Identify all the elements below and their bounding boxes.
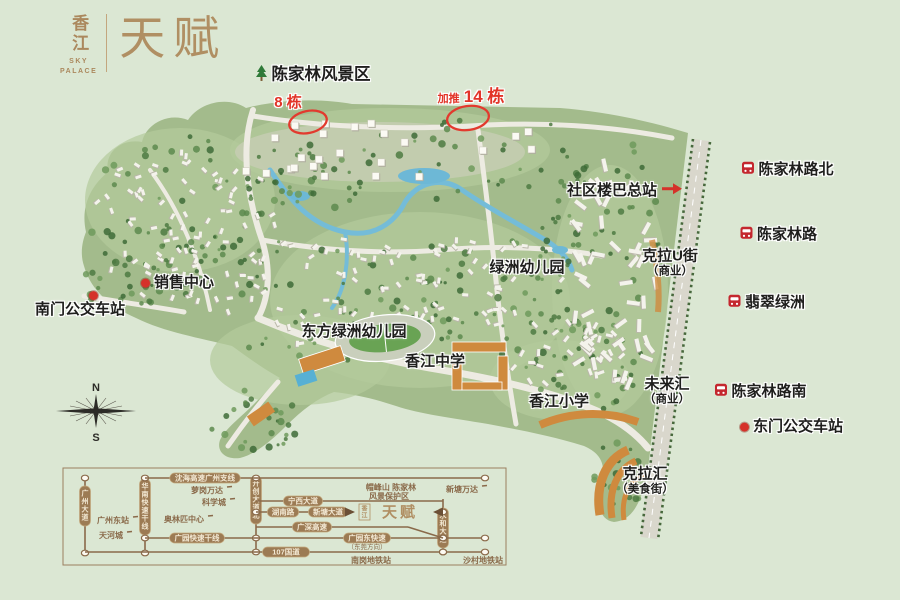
svg-text:南: 南 — [142, 490, 149, 499]
svg-text:沈海高速广州支线: 沈海高速广州支线 — [175, 473, 235, 483]
transit-place-label: 沙村地铁站 — [463, 555, 503, 565]
svg-text:107国道: 107国道 — [272, 547, 300, 557]
transit-place-label: 南岗地铁站 — [351, 555, 391, 565]
svg-text:干: 干 — [142, 515, 149, 523]
transit-project-name: 天赋 — [382, 503, 418, 521]
brand-cn-text: 香江 — [70, 14, 87, 54]
project-name: 天赋 — [119, 14, 227, 65]
svg-text:江: 江 — [361, 512, 367, 520]
svg-text:广: 广 — [82, 489, 89, 498]
svg-text:线: 线 — [142, 522, 149, 531]
svg-text:速: 速 — [142, 506, 149, 515]
svg-text:大: 大 — [253, 495, 260, 504]
svg-text:和: 和 — [439, 519, 447, 528]
svg-text:香: 香 — [360, 505, 368, 513]
transit-place-label: 广州东站 — [97, 515, 129, 525]
transit-place-label: 萝岗万达 — [191, 485, 223, 495]
site-map-page: 香江 SKY PALACE 天赋 陈家林风景区8 栋加推 14 栋社区楼巴总站陈… — [0, 0, 900, 600]
transit-place-label: 奥林匹中心 — [163, 514, 204, 524]
transit-place-label: 新塘万达 — [446, 484, 478, 494]
transit-place-label: 天河城 — [99, 530, 123, 540]
transit-diagram: 广州大道华南快速干线开创大道北永和大道沈海高速广州支线宁西大道湖南路新塘大道广深… — [0, 0, 900, 600]
svg-text:新塘大道: 新塘大道 — [313, 507, 343, 517]
brand-logo: 香江 SKY PALACE 天赋 — [60, 14, 227, 77]
svg-text:快: 快 — [142, 498, 150, 507]
arrow-right-icon — [345, 508, 355, 517]
transit-place-label: 风景保护区 — [369, 491, 409, 501]
svg-text:广园快速干线: 广园快速干线 — [175, 533, 220, 543]
svg-text:宁西大道: 宁西大道 — [288, 496, 318, 506]
svg-text:大: 大 — [440, 527, 447, 536]
logo-divider — [106, 14, 107, 72]
svg-text:华: 华 — [142, 482, 149, 491]
svg-text:（东莞方向）: （东莞方向） — [348, 542, 387, 551]
svg-text:湖南路: 湖南路 — [272, 507, 295, 517]
transit-content: 广州大道华南快速干线开创大道北永和大道沈海高速广州支线宁西大道湖南路新塘大道广深… — [63, 468, 506, 565]
brand-en-text: SKY PALACE — [60, 57, 97, 77]
brand-logo-seal: 香江 SKY PALACE — [60, 14, 97, 77]
svg-text:广深高速: 广深高速 — [297, 522, 327, 532]
svg-text:道: 道 — [82, 513, 89, 522]
transit-place-label: 帽峰山 陈家林 — [366, 482, 416, 492]
transit-place-label: 科学城 — [202, 497, 226, 507]
svg-text:大: 大 — [82, 505, 89, 514]
svg-text:广园东快速: 广园东快速 — [348, 533, 386, 543]
svg-text:州: 州 — [81, 498, 89, 506]
svg-text:创: 创 — [252, 487, 260, 496]
